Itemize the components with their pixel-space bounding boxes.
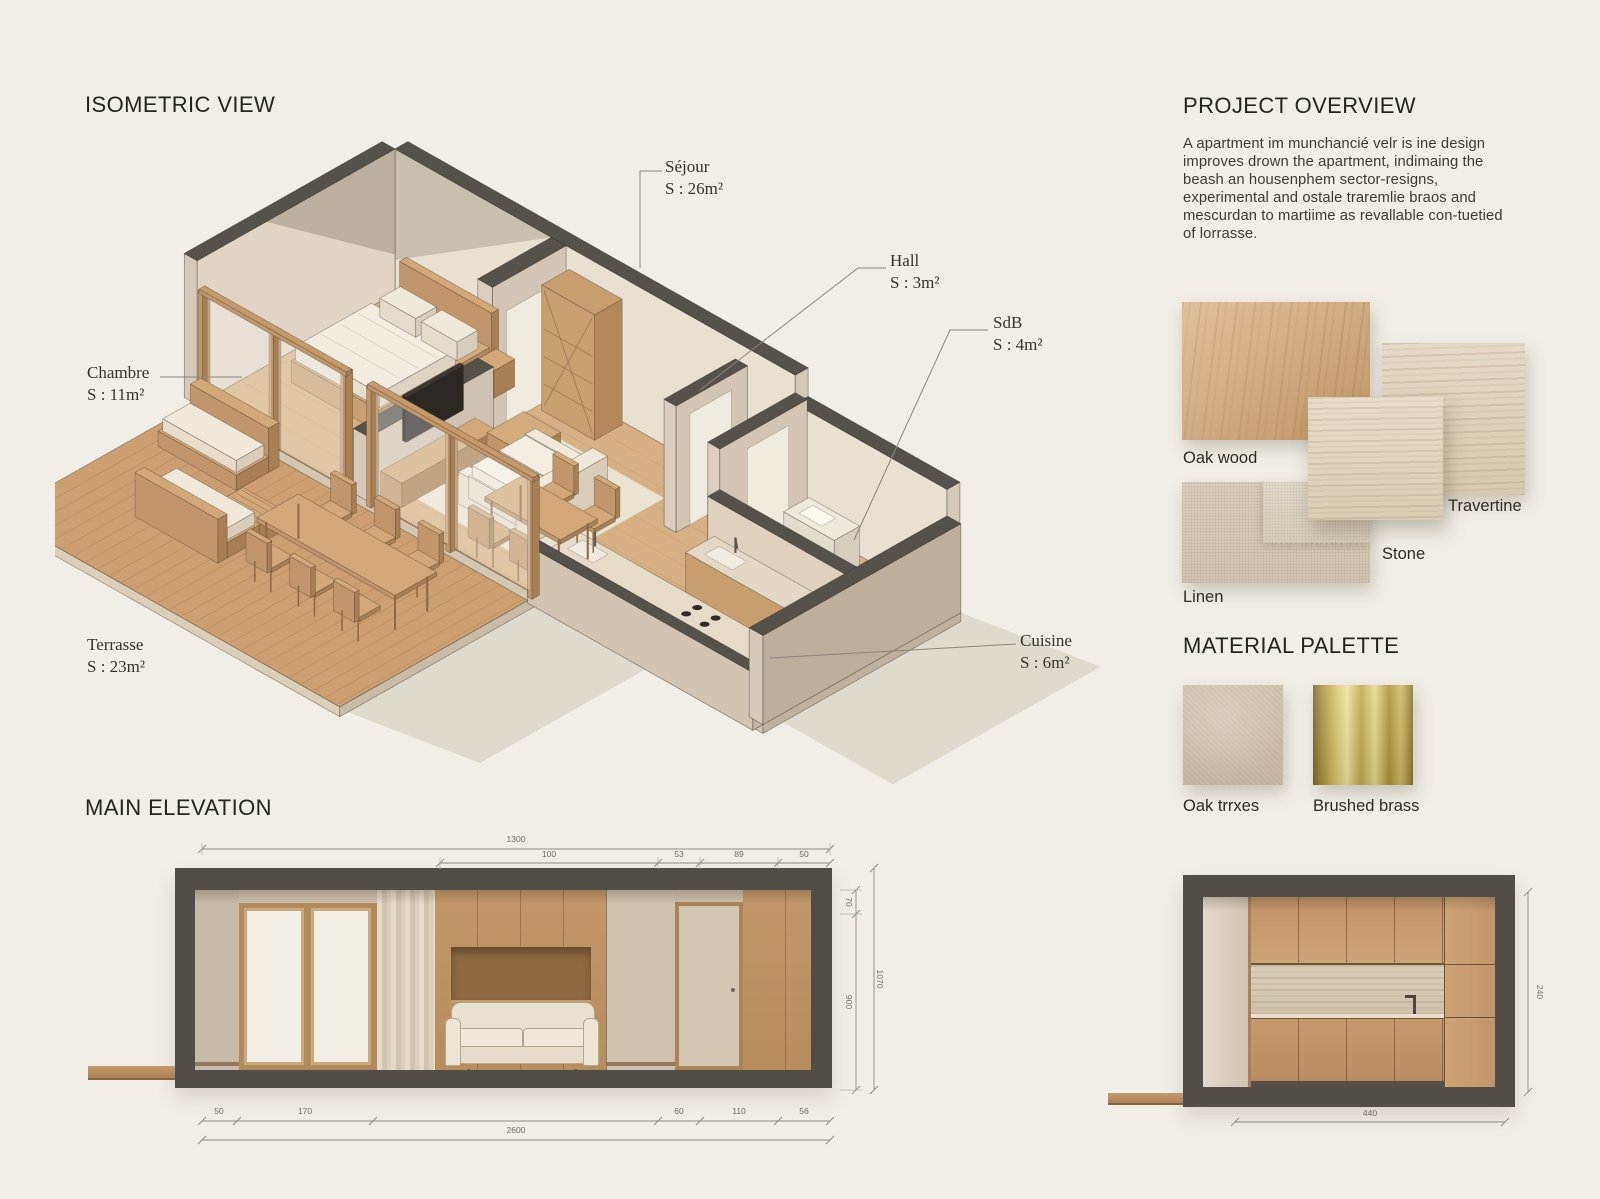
- presentation-board: ISOMETRIC VIEW PROJECT OVERVIEW MAIN ELE…: [0, 0, 1600, 1199]
- door-pane: [311, 908, 371, 1065]
- label-sdb: SdB S : 4m²: [993, 312, 1043, 356]
- label-sejour: Séjour S : 26m²: [665, 156, 723, 200]
- material-palette-title: MATERIAL PALETTE: [1183, 633, 1399, 658]
- dim-height-total: 1070: [875, 970, 885, 989]
- dim-segment: 89: [734, 849, 743, 859]
- room-area: S : 4m²: [993, 334, 1043, 356]
- wall-section: [195, 890, 239, 1070]
- dim-total-bottom: 2600: [507, 1125, 526, 1135]
- main-elevation-drawing: [175, 868, 832, 1088]
- room-area: S : 6m²: [1020, 652, 1072, 674]
- main-elevation-interior: [195, 890, 811, 1070]
- isometric-view-title: ISOMETRIC VIEW: [85, 92, 275, 117]
- label-terrasse: Terrasse S : 23m²: [87, 634, 145, 678]
- kitchen-elevation-drawing: [1183, 875, 1515, 1107]
- room-name: Cuisine: [1020, 630, 1072, 652]
- dim-kitchen-width: 440: [1363, 1108, 1377, 1118]
- brushed-brass-label: Brushed brass: [1313, 797, 1419, 816]
- room-area: S : 3m²: [890, 272, 940, 294]
- project-overview-title: PROJECT OVERVIEW: [1183, 93, 1416, 118]
- curtain: [377, 890, 435, 1070]
- dim-segment: 50: [214, 1106, 223, 1116]
- terrace-ledge: [1108, 1093, 1183, 1105]
- room-area: S : 23m²: [87, 656, 145, 678]
- stone-swatch: [1308, 397, 1443, 520]
- wall-section: [1203, 897, 1251, 1087]
- room-area: S : 11m²: [87, 384, 149, 406]
- tall-cabinet: [1444, 897, 1495, 1087]
- door-handle: [731, 988, 735, 992]
- interior-door: [675, 902, 743, 1070]
- sliding-door: [239, 903, 377, 1070]
- main-elevation-title: MAIN ELEVATION: [85, 795, 272, 820]
- skirting: [195, 1062, 239, 1066]
- tall-cabinet-seam: [1444, 964, 1495, 965]
- sofa-leg: [574, 1069, 577, 1070]
- wall-section: [607, 890, 675, 1070]
- label-hall: Hall S : 3m²: [890, 250, 940, 294]
- linen-label: Linen: [1183, 588, 1223, 607]
- isometric-apartment-drawing: [55, 105, 1160, 805]
- room-name: SdB: [993, 312, 1043, 334]
- sofa-arm: [583, 1018, 599, 1066]
- room-name: Chambre: [87, 362, 149, 384]
- dim-height-upper: 70: [844, 897, 854, 906]
- room-name: Terrasse: [87, 634, 145, 656]
- stone-label: Stone: [1382, 545, 1425, 564]
- dim-height-main: 900: [844, 995, 854, 1009]
- sofa-leg: [467, 1069, 470, 1070]
- skirting: [607, 1062, 675, 1066]
- wall-niche: [451, 947, 591, 1003]
- brushed-brass-swatch: [1313, 685, 1413, 785]
- room-area: S : 26m²: [665, 178, 723, 200]
- toe-kick: [1251, 1081, 1444, 1087]
- dim-total-width: 1300: [507, 834, 526, 844]
- dim-kitchen-height: 240: [1535, 985, 1545, 999]
- terrace-ledge: [88, 1066, 175, 1080]
- label-cuisine: Cuisine S : 6m²: [1020, 630, 1072, 674]
- interior-shadow: [195, 890, 811, 904]
- kitchen-elevation-interior: [1203, 897, 1495, 1087]
- oak-palette-label: Oak trrxes: [1183, 797, 1259, 816]
- door-pane: [244, 908, 304, 1065]
- oak-wood-label: Oak wood: [1183, 449, 1257, 468]
- project-overview-body: A apartment im munchancié velr is ine de…: [1183, 136, 1515, 243]
- dim-segment: 56: [799, 1106, 808, 1116]
- interior-shadow: [1203, 897, 1495, 911]
- room-name: Séjour: [665, 156, 723, 178]
- sofa-elevation: [445, 1002, 599, 1070]
- label-chambre: Chambre S : 11m²: [87, 362, 149, 406]
- travertine-label: Travertine: [1448, 497, 1522, 516]
- room-name: Hall: [890, 250, 940, 272]
- tall-cabinet-seam: [1444, 1017, 1495, 1018]
- oak-palette-swatch: [1183, 685, 1283, 785]
- sofa-arm: [445, 1018, 461, 1066]
- dim-segment: 170: [298, 1106, 312, 1116]
- dim-segment: 60: [674, 1106, 683, 1116]
- dim-segment: 50: [799, 849, 808, 859]
- dim-segment: 110: [732, 1106, 746, 1116]
- dim-segment: 100: [542, 849, 556, 859]
- dim-segment: 53: [674, 849, 683, 859]
- base-cabinets: [1251, 1019, 1444, 1087]
- sofa-base: [449, 1046, 597, 1064]
- wood-panel-wall: [743, 890, 811, 1070]
